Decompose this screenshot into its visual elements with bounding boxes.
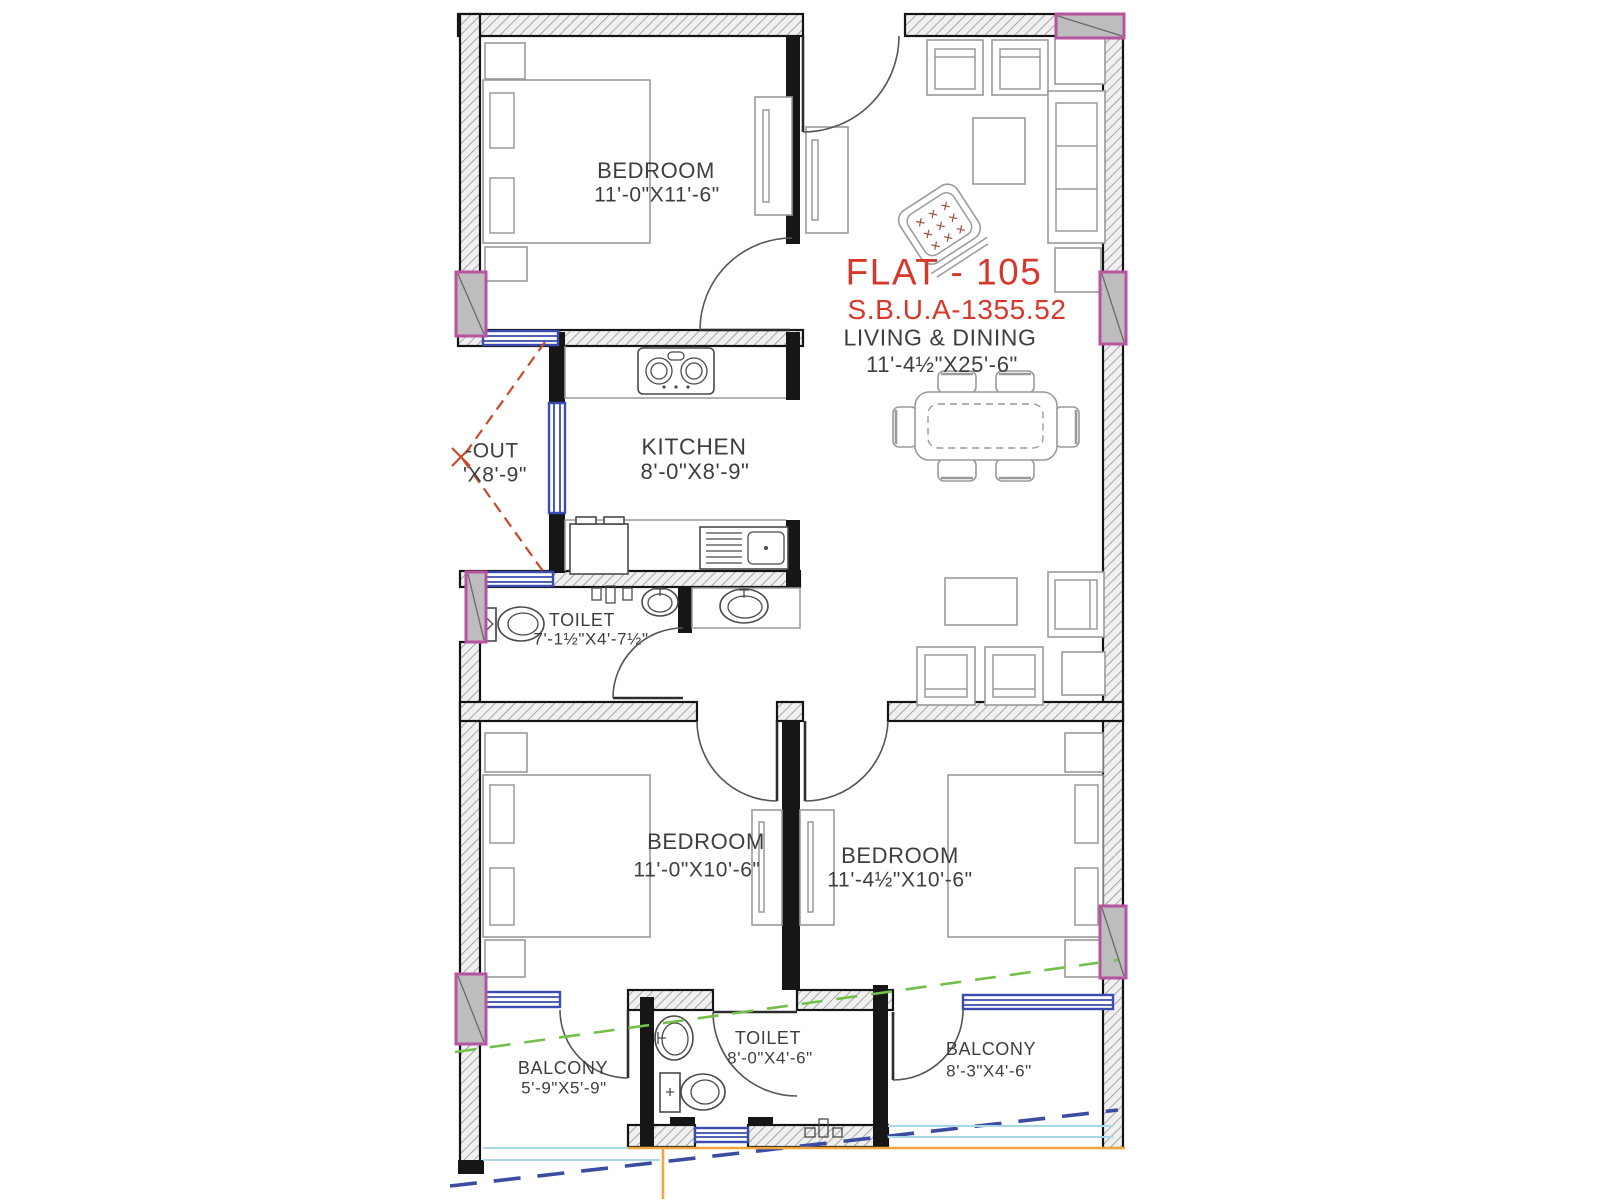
gas-hob-icon [638, 348, 714, 394]
armchair-icon [917, 647, 975, 705]
washbasin-icon [642, 588, 678, 616]
flat-sbua: S.B.U.A-1355.52 [847, 296, 1066, 324]
room-dims-kitchen: 8'-0"X8'-9" [641, 461, 750, 483]
column-icon [456, 974, 486, 1044]
column-icon [466, 572, 486, 642]
window-icon [484, 992, 560, 1007]
cabinet-icon [806, 127, 848, 233]
wardrobe-icon [755, 97, 792, 215]
room-label-kitchen: KITCHEN [641, 436, 746, 459]
window-icon [549, 403, 565, 513]
floor-plan: BEDROOM 11'-0"X11'-6" FLAT - 105 S.B.U.A… [0, 0, 1600, 1200]
armchair-icon [985, 647, 1043, 705]
wc-icon [660, 1073, 725, 1112]
room-dims-toilet-mid: 7'-1½"X4'-7½" [533, 631, 648, 648]
window-icon [483, 572, 553, 586]
room-label-bedroom-top: BEDROOM [597, 160, 715, 182]
room-dims-bedroom-left: 11'-0"X10'-6" [633, 860, 760, 881]
sofa-icon [1048, 91, 1105, 243]
armchair-icon [927, 40, 983, 95]
room-dims-balcony-left: 5'-9"X5'-9" [521, 1080, 607, 1097]
refrigerator-icon [570, 517, 628, 574]
room-dims-balcony-right: 8'-3"X4'-6" [946, 1063, 1032, 1080]
armchair-icon [992, 40, 1048, 95]
room-label-bedroom-left: BEDROOM [647, 831, 765, 853]
room-label-balcony-right: BALCONY [946, 1040, 1036, 1058]
room-label-balcony-left: BALCONY [518, 1059, 608, 1077]
column-icon [1100, 272, 1126, 344]
flat-title: FLAT - 105 [846, 254, 1043, 291]
room-label-toilet-bottom: TOILET [735, 1029, 801, 1047]
coffee-table-icon [973, 118, 1025, 184]
armchair-icon [1048, 572, 1104, 637]
room-dims-toilet-bottom: 8'-0"X4'-6" [727, 1050, 813, 1067]
room-label-living-dining: LIVING & DINING [843, 327, 1036, 350]
floor-plan-drawing [0, 0, 1600, 1200]
column-icon [1056, 14, 1124, 38]
side-table-icon [1062, 652, 1105, 695]
side-table-icon [1055, 248, 1101, 292]
window-icon [695, 1128, 748, 1142]
room-label-bedroom-right: BEDROOM [841, 845, 959, 867]
room-label-cutout: -OUT [465, 441, 519, 462]
column-icon [456, 272, 486, 336]
room-dims-living-dining: 11'-4½"X25'-6" [866, 354, 1018, 376]
window-icon [483, 331, 558, 345]
kitchen-sink-icon [700, 527, 788, 569]
table-icon [945, 578, 1017, 625]
wardrobe-icon [800, 810, 834, 925]
window-icon [963, 995, 1113, 1009]
room-dims-bedroom-right: 11'-4½"X10'-6" [827, 870, 972, 891]
room-label-toilet-mid: TOILET [549, 611, 615, 629]
room-dims-bedroom-top: 11'-0"X11'-6" [594, 185, 720, 206]
side-table-icon [1055, 38, 1105, 84]
room-dims-cutout: 'X8'-9" [463, 465, 527, 486]
column-icon [1100, 906, 1126, 978]
